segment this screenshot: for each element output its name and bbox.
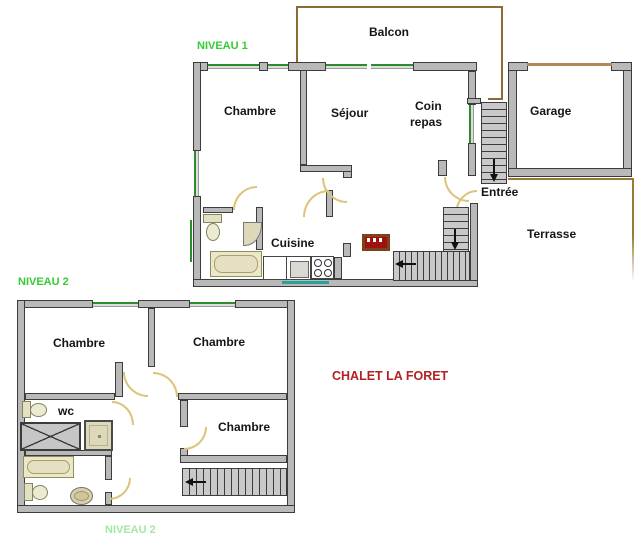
door-arc [123,372,148,397]
balcony-railing-left [296,6,298,62]
toilet-icon [30,403,47,417]
garage-label: Garage [530,104,571,118]
wall [611,62,632,71]
door-arc [153,372,178,397]
cropped-level-caption: NIVEAU 2 [105,524,156,533]
wall [180,400,188,427]
wall [623,62,632,177]
balcony-railing-right [501,6,503,100]
window [268,64,288,69]
wall [25,393,115,400]
level-2-label: NIVEAU 2 [18,276,69,288]
window [194,151,199,196]
wall [17,505,295,513]
toilet-icon [203,214,222,223]
door-arc [109,478,131,500]
balcony-railing-return [488,98,502,100]
wall [508,62,517,177]
toilet-icon [32,485,48,500]
garage-door-icon [527,63,612,66]
window [190,302,235,307]
toilet-icon [206,223,220,241]
entree-label: Entrée [481,185,518,199]
wall [334,257,342,279]
shower-icon [20,422,81,451]
room-label-chambre-n2-right: Chambre [193,335,245,349]
shower-tray-icon [84,420,113,451]
window [371,64,413,69]
wall [193,196,201,287]
fireplace-icon [362,234,390,251]
bathtub-icon [23,456,74,478]
window [469,105,474,143]
room-label-coin-line2: repas [410,115,442,129]
wall [178,393,287,400]
entry-stairs-arrow-down-icon [489,158,499,183]
window [282,281,329,284]
level-1-label: NIVEAU 1 [197,40,248,52]
door-arc [184,427,207,450]
window [326,64,367,69]
wall [413,62,477,71]
wall [288,62,326,71]
stairs-arrow-left-icon [184,477,207,487]
terrasse-label: Terrasse [527,227,576,241]
floor-plan-canvas: NIVEAU 1 Balcon Chambre Séjour Coin repa… [0,0,640,533]
room-label-chambre-n2-third: Chambre [218,420,270,434]
wall [259,62,268,71]
door-arc [112,401,134,425]
room-label-chambre-n1: Chambre [224,104,276,118]
room-label-coin-line1: Coin [415,99,442,113]
wall [180,455,287,463]
wall [470,203,478,281]
room-label-wc: wc [58,404,74,418]
stairs-arrow-down-icon [450,228,460,251]
room-label-sejour: Séjour [331,106,368,120]
window [208,64,259,69]
window [93,302,138,307]
kitchen-counter-icon [263,256,311,280]
wall [138,300,190,308]
wall [300,70,307,165]
wall [105,456,112,480]
chalet-title: CHALET LA FORET [332,369,448,383]
wall [467,98,481,104]
wall [468,143,476,176]
terrace-edge-top [508,178,634,180]
balcony-railing-top [296,6,503,8]
stairs-arrow-left-icon [394,259,417,269]
wall [343,171,352,178]
wall [235,300,295,308]
room-label-cuisine: Cuisine [271,236,314,250]
wall [148,308,155,367]
door-arc [233,186,257,210]
wall [193,62,201,151]
door-arc [303,190,329,217]
bathtub-icon [210,251,262,277]
wall [287,300,295,513]
window [190,220,192,262]
room-label-chambre-n2-left: Chambre [53,336,105,350]
terrace-edge-right [632,179,634,282]
stove-icon [311,256,334,279]
wall [343,243,351,257]
wall [508,62,528,71]
wall [17,300,93,308]
balcony-label: Balcon [369,25,409,39]
wall [203,207,233,213]
wall [508,168,632,177]
wall [438,160,447,176]
sink-icon [70,487,93,505]
wall [115,362,123,397]
